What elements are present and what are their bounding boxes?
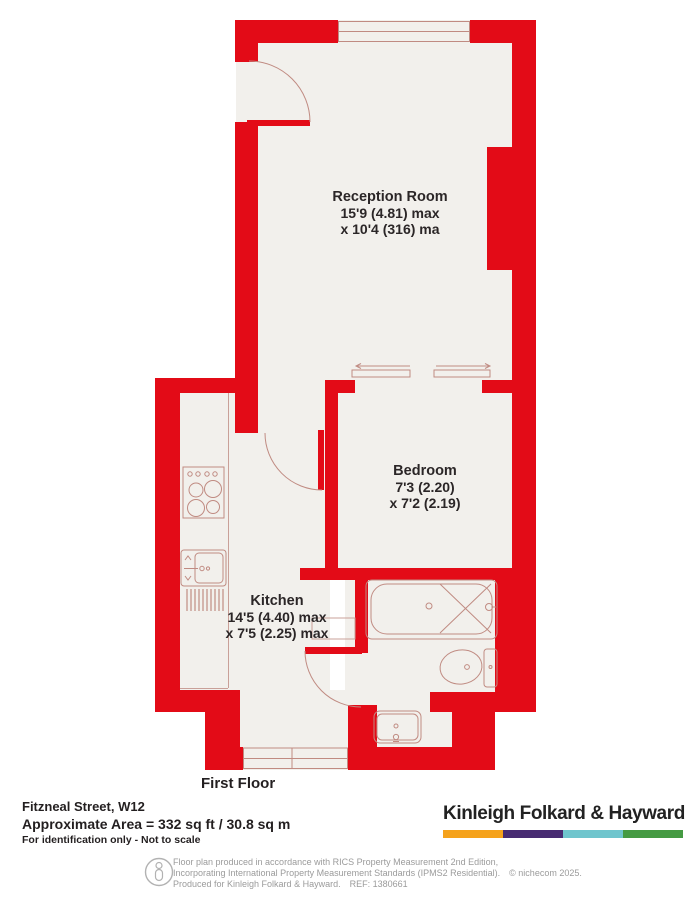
footer-line-1: Floor plan produced in accordance with R… <box>173 857 582 868</box>
footer-line-3: Produced for Kinleigh Folkard & Hayward.… <box>173 879 582 890</box>
property-address: Fitzneal Street, W12 <box>22 799 290 815</box>
kfh-color-bar <box>443 830 683 838</box>
room-name: Reception Room <box>290 189 490 205</box>
floor-name-label: First Floor <box>201 775 275 792</box>
kitchen-label: Kitchen 14'5 (4.40) max x 7'5 (2.25) max <box>187 593 367 641</box>
room-dim: x 7'2 (2.19) <box>335 495 515 511</box>
kitchen-door-leaf <box>318 430 324 490</box>
kfh-bar-segment <box>563 830 623 838</box>
property-area: Approximate Area = 332 sq ft / 30.8 sq m <box>22 815 290 833</box>
footer-line-2: Incorporating International Property Mea… <box>173 868 582 879</box>
kfh-logo-text: Kinleigh Folkard & Hayward <box>443 803 683 825</box>
kfh-bar-segment <box>443 830 503 838</box>
produced-for-text: Produced for Kinleigh Folkard & Hayward. <box>173 879 341 889</box>
room-dim: 15'9 (4.81) max <box>290 205 490 221</box>
room-dim: x 10'4 (316) ma <box>290 221 490 237</box>
entry-door-leaf <box>247 120 310 126</box>
identification-note: For identification only - Not to scale <box>22 833 290 847</box>
floor-plan <box>0 0 691 900</box>
room-name: Bedroom <box>335 463 515 479</box>
property-info: Fitzneal Street, W12 Approximate Area = … <box>22 799 290 847</box>
floorplan-page: Reception Room 15'9 (4.81) max x 10'4 (3… <box>0 0 691 900</box>
bathroom-door-leaf <box>305 647 362 654</box>
room-dim: x 7'5 (2.25) max <box>187 625 367 641</box>
copyright-text: © nichecom 2025. <box>509 868 582 878</box>
room-name: Kitchen <box>187 593 367 609</box>
kfh-logo: Kinleigh Folkard & Hayward <box>443 803 683 838</box>
reference-number: REF: 1380661 <box>350 879 408 889</box>
room-dim: 7'3 (2.20) <box>335 479 515 495</box>
window-top-icon <box>338 20 470 43</box>
bedroom-label: Bedroom 7'3 (2.20) x 7'2 (2.19) <box>335 463 515 511</box>
person-icon <box>143 856 175 888</box>
footer-disclaimer: Floor plan produced in accordance with R… <box>173 857 582 890</box>
kfh-bar-segment <box>503 830 563 838</box>
footer-standards-text: Incorporating International Property Mea… <box>173 868 500 878</box>
reception-room-label: Reception Room 15'9 (4.81) max x 10'4 (3… <box>290 189 490 237</box>
room-dim: 14'5 (4.40) max <box>187 609 367 625</box>
window-bottom-icon <box>243 747 348 770</box>
kfh-bar-segment <box>623 830 683 838</box>
